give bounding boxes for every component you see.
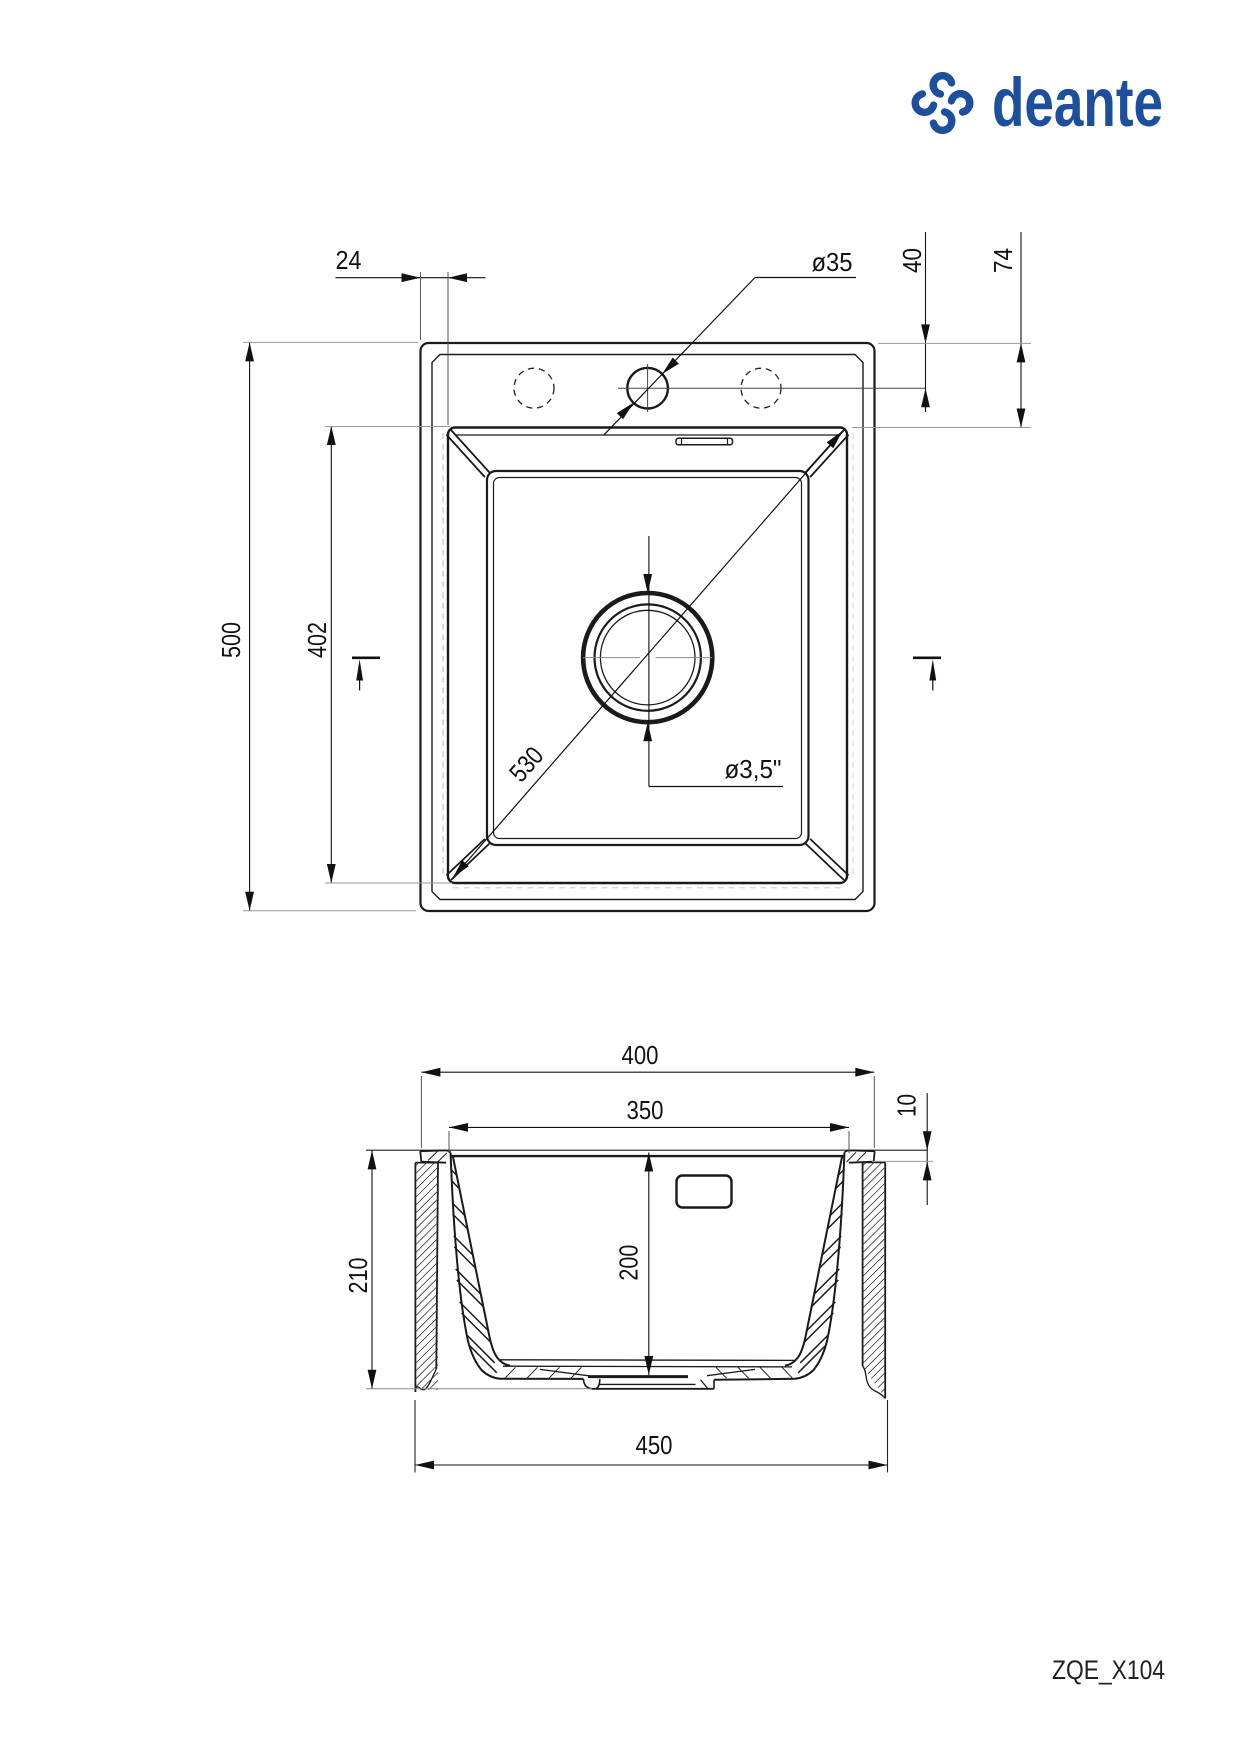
svg-text:ZQE_X104: ZQE_X104: [1052, 1655, 1165, 1685]
svg-text:200: 200: [614, 1245, 644, 1281]
svg-text:400: 400: [622, 1040, 659, 1070]
svg-text:500: 500: [216, 622, 246, 658]
svg-text:402: 402: [302, 622, 332, 658]
svg-text:450: 450: [636, 1430, 673, 1460]
svg-text:210: 210: [343, 1258, 373, 1294]
svg-text:deante: deante: [992, 64, 1163, 141]
svg-text:ø35: ø35: [812, 247, 853, 277]
svg-text:10: 10: [892, 1094, 922, 1117]
svg-text:ø3,5": ø3,5": [725, 754, 782, 784]
svg-text:24: 24: [336, 245, 362, 275]
svg-text:350: 350: [627, 1095, 664, 1125]
svg-text:40: 40: [897, 248, 927, 273]
svg-text:74: 74: [988, 248, 1018, 273]
